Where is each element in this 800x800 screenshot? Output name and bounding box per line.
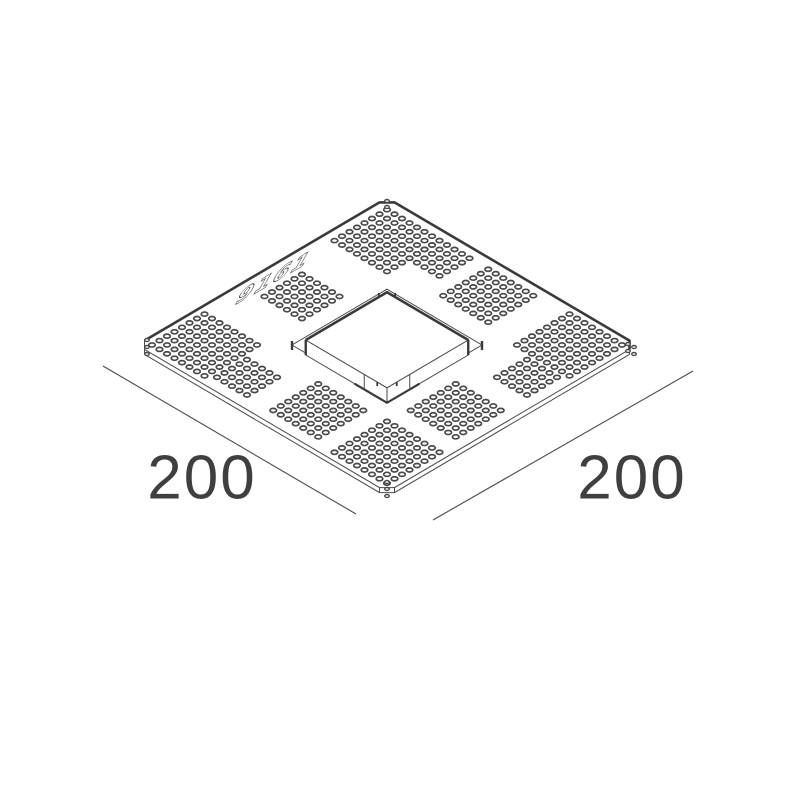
perforation-hole <box>194 316 201 320</box>
perforation-hole <box>346 441 353 445</box>
perforation-hole <box>414 446 421 450</box>
perforation-hole <box>500 276 507 280</box>
perforation-hole <box>421 230 428 234</box>
perforation-hole <box>470 276 477 280</box>
perforation-hole <box>524 393 531 397</box>
perforation-hole <box>209 343 216 347</box>
perforation-hole <box>415 404 422 408</box>
perforation-hole <box>354 463 361 467</box>
perforation-hole <box>421 256 428 260</box>
perforation-hole <box>221 380 228 384</box>
perforation-hole <box>376 433 383 437</box>
perforation-hole <box>321 294 328 298</box>
perforation-hole <box>306 303 313 307</box>
perforation-hole <box>477 298 484 302</box>
perforation-hole <box>331 450 338 454</box>
perforation-hole <box>322 413 329 417</box>
perforation-hole <box>551 356 558 360</box>
perforation-hole <box>536 330 543 334</box>
perforation-hole <box>415 413 422 417</box>
perforation-hole <box>179 361 186 365</box>
perforation-hole <box>354 243 361 247</box>
perforation-hole <box>337 395 344 399</box>
perforation-hole <box>422 400 429 404</box>
perforation-hole <box>399 225 406 229</box>
perforation-hole <box>421 441 428 445</box>
perforation-hole <box>581 321 588 325</box>
perforation-hole <box>291 277 298 281</box>
perforation-hole <box>485 285 492 289</box>
perforation-hole <box>445 386 452 390</box>
perforation-hole <box>477 289 484 293</box>
perforation-hole <box>524 366 531 370</box>
perforation-hole <box>209 334 216 338</box>
perforation-hole <box>369 252 376 256</box>
perforation-hole <box>429 455 436 459</box>
perforation-hole <box>509 366 516 370</box>
perforation-hole <box>391 477 398 481</box>
perforation-hole <box>399 428 406 432</box>
perforation-hole <box>369 261 376 265</box>
perforation-hole <box>437 426 444 430</box>
perforation-hole <box>492 307 499 311</box>
perforation-hole <box>244 366 251 370</box>
plate-isometric-drawing: 9161 <box>0 0 800 800</box>
perforation-hole <box>559 352 566 356</box>
perforation-hole <box>470 294 477 298</box>
perforation-hole <box>352 413 359 417</box>
perforation-hole <box>574 343 581 347</box>
perforation-hole <box>194 352 201 356</box>
perforation-hole <box>376 265 383 269</box>
corner-fixing-hole <box>626 350 631 353</box>
perforation-hole <box>376 230 383 234</box>
perforation-hole <box>436 239 443 243</box>
perforation-hole <box>384 419 391 423</box>
perforation-hole <box>244 375 251 379</box>
perforation-hole <box>244 384 251 388</box>
perforation-hole <box>307 395 314 399</box>
perforation-hole <box>369 446 376 450</box>
perforation-hole <box>231 356 238 360</box>
perforation-hole <box>524 384 531 388</box>
perforation-hole <box>447 289 454 293</box>
perforation-hole <box>307 430 314 434</box>
perforation-hole <box>352 404 359 408</box>
perforation-hole <box>445 413 452 417</box>
perforation-hole <box>330 426 337 430</box>
perforation-hole <box>284 290 291 294</box>
perforation-hole <box>536 347 543 351</box>
perforation-hole <box>406 239 413 243</box>
perforation-hole <box>239 343 246 347</box>
perforation-hole <box>470 311 477 315</box>
perforation-hole <box>589 361 596 365</box>
perforation-hole <box>596 339 603 343</box>
perforation-hole <box>492 289 499 293</box>
perforation-hole <box>554 375 561 379</box>
perforation-hole <box>574 361 581 365</box>
perforation-hole <box>462 280 469 284</box>
perforation-hole <box>546 380 553 384</box>
perforation-hole <box>315 408 322 412</box>
perforation-hole <box>414 463 421 467</box>
perforation-hole <box>201 374 208 378</box>
perforation-hole <box>276 303 283 307</box>
perforation-hole <box>500 285 507 289</box>
perforation-hole <box>285 408 292 412</box>
perforation-hole <box>482 408 489 412</box>
perforation-hole <box>452 408 459 412</box>
perforation-hole <box>460 395 467 399</box>
perforation-hole <box>452 435 459 439</box>
perforation-hole <box>429 269 436 273</box>
perforation-hole <box>514 343 521 347</box>
perforation-hole <box>436 265 443 269</box>
perforation-hole <box>551 365 558 369</box>
perforation-hole <box>485 311 492 315</box>
perforation-hole <box>384 243 391 247</box>
perforation-hole <box>277 404 284 408</box>
perforation-hole <box>266 371 273 375</box>
perforation-hole <box>422 408 429 412</box>
perforation-hole <box>436 450 443 454</box>
perforation-hole <box>331 239 338 243</box>
perforation-hole <box>460 422 467 426</box>
perforation-hole <box>239 334 246 338</box>
perforation-hole <box>259 384 266 388</box>
perforation-hole <box>494 375 501 379</box>
perforation-hole <box>254 343 261 347</box>
perforation-hole <box>477 307 484 311</box>
perforation-hole <box>477 280 484 284</box>
perforation-hole <box>581 339 588 343</box>
perforation-hole <box>229 384 236 388</box>
perforation-hole <box>376 459 383 463</box>
perforation-hole <box>455 294 462 298</box>
perforation-hole <box>306 286 313 290</box>
perforation-hole <box>384 217 391 221</box>
perforation-hole <box>467 426 474 430</box>
perforation-hole <box>536 339 543 343</box>
perforation-hole <box>361 230 368 234</box>
perforation-hole <box>224 325 231 329</box>
perforation-hole <box>406 230 413 234</box>
perforation-hole <box>574 352 581 356</box>
perforation-hole <box>429 261 436 265</box>
perforation-hole <box>171 339 178 343</box>
perforation-hole <box>322 430 329 434</box>
perforation-hole <box>421 239 428 243</box>
perforation-hole <box>566 365 573 369</box>
perforation-hole <box>201 365 208 369</box>
perforation-hole <box>492 316 499 320</box>
perforation-hole <box>384 252 391 256</box>
perforation-hole <box>346 239 353 243</box>
perforation-hole <box>406 441 413 445</box>
perforation-hole <box>515 285 522 289</box>
perforation-hole <box>407 408 414 412</box>
perforation-hole <box>581 330 588 334</box>
perforation-hole <box>529 343 536 347</box>
perforation-hole <box>391 441 398 445</box>
perforation-hole <box>201 339 208 343</box>
perforation-hole <box>406 247 413 251</box>
perforation-hole <box>276 286 283 290</box>
perforation-hole <box>485 267 492 271</box>
perforation-hole <box>251 362 258 366</box>
perforation-hole <box>354 446 361 450</box>
perforation-hole <box>369 243 376 247</box>
perforation-hole <box>236 362 243 366</box>
perforation-hole <box>251 389 258 393</box>
perforation-hole <box>209 361 216 365</box>
perforation-hole <box>414 455 421 459</box>
perforation-hole <box>482 417 489 421</box>
perforation-hole <box>376 247 383 251</box>
perforation-hole <box>361 450 368 454</box>
perforation-hole <box>559 334 566 338</box>
perforation-hole <box>462 289 469 293</box>
perforation-hole <box>314 308 321 312</box>
perforation-hole <box>444 243 451 247</box>
perforation-hole <box>460 404 467 408</box>
perforation-hole <box>529 334 536 338</box>
perforation-hole <box>307 413 314 417</box>
perforation-hole <box>251 371 258 375</box>
perforation-hole <box>452 382 459 386</box>
perforation-hole <box>470 285 477 289</box>
perforation-hole <box>399 463 406 467</box>
perforation-hole <box>566 347 573 351</box>
perforation-hole <box>574 325 581 329</box>
perforation-hole <box>531 380 538 384</box>
perforation-hole <box>530 294 537 298</box>
perforation-hole <box>452 400 459 404</box>
perforation-hole <box>384 225 391 229</box>
perforation-hole <box>369 428 376 432</box>
perforation-hole <box>485 303 492 307</box>
perforation-hole <box>314 281 321 285</box>
perforation-hole <box>399 217 406 221</box>
perforation-hole <box>306 277 313 281</box>
perforation-hole <box>246 339 253 343</box>
perforation-hole <box>284 299 291 303</box>
perforation-hole <box>361 256 368 260</box>
perforation-hole <box>339 243 346 247</box>
perforation-hole <box>460 386 467 390</box>
perforation-hole <box>470 303 477 307</box>
perforation-hole <box>559 361 566 365</box>
perforation-hole <box>539 375 546 379</box>
perforation-hole <box>299 281 306 285</box>
perforation-hole <box>261 294 268 298</box>
perforation-hole <box>522 298 529 302</box>
perforation-hole <box>360 408 367 412</box>
perforation-hole <box>451 256 458 260</box>
perforation-hole <box>399 446 406 450</box>
perforation-hole <box>500 303 507 307</box>
perforation-hole <box>259 375 266 379</box>
perforation-hole <box>201 321 208 325</box>
perforation-hole <box>384 428 391 432</box>
perforation-hole <box>500 294 507 298</box>
perforation-hole <box>369 234 376 238</box>
perforation-hole <box>406 221 413 225</box>
perforation-hole <box>492 280 499 284</box>
perforation-hole <box>239 352 246 356</box>
perforation-hole <box>566 356 573 360</box>
perforation-hole <box>376 221 383 225</box>
perforation-hole <box>391 256 398 260</box>
perforation-hole <box>391 212 398 216</box>
perforation-hole <box>574 369 581 373</box>
perforation-hole <box>451 265 458 269</box>
perforation-hole <box>186 356 193 360</box>
perforation-hole <box>229 375 236 379</box>
perforation-hole <box>460 413 467 417</box>
corner-fixing-hole <box>626 343 631 346</box>
perforation-hole <box>485 320 492 324</box>
perforation-hole <box>346 450 353 454</box>
perforation-hole <box>209 316 216 320</box>
perforation-hole <box>391 424 398 428</box>
perforation-hole <box>284 281 291 285</box>
perforation-hole <box>507 280 514 284</box>
perforation-hole <box>300 408 307 412</box>
perforation-hole <box>376 468 383 472</box>
perforation-hole <box>566 374 573 378</box>
perforation-hole <box>322 404 329 408</box>
perforation-hole <box>475 413 482 417</box>
perforation-hole <box>214 375 221 379</box>
perforation-hole <box>581 347 588 351</box>
perforation-hole <box>574 316 581 320</box>
perforation-hole <box>179 334 186 338</box>
perforation-hole <box>216 321 223 325</box>
perforation-hole <box>500 311 507 315</box>
perforation-hole <box>559 343 566 347</box>
perforation-hole <box>391 450 398 454</box>
perforation-hole <box>524 358 531 362</box>
perforation-hole <box>339 446 346 450</box>
perforation-hole <box>251 380 258 384</box>
perforation-hole <box>467 417 474 421</box>
perforation-hole <box>546 371 553 375</box>
perforation-hole <box>270 408 277 412</box>
perforation-hole <box>445 422 452 426</box>
perforation-hole <box>490 413 497 417</box>
perforation-hole <box>186 321 193 325</box>
perforation-hole <box>186 330 193 334</box>
perforation-hole <box>544 334 551 338</box>
perforation-hole <box>384 446 391 450</box>
perforation-hole <box>574 334 581 338</box>
perforation-hole <box>466 256 473 260</box>
perforation-hole <box>322 422 329 426</box>
perforation-hole <box>345 417 352 421</box>
perforation-hole <box>399 472 406 476</box>
corner-fixing-hole <box>632 346 637 349</box>
perforation-hole <box>337 404 344 408</box>
perforation-hole <box>452 417 459 421</box>
perforation-hole <box>414 243 421 247</box>
perforation-hole <box>589 325 596 329</box>
perforation-hole <box>229 366 236 370</box>
perforation-hole <box>354 437 361 441</box>
perforation-hole <box>376 450 383 454</box>
perforation-hole <box>315 391 322 395</box>
perforation-hole <box>209 352 216 356</box>
perforation-hole <box>369 463 376 467</box>
perforation-hole <box>529 352 536 356</box>
perforation-hole <box>194 361 201 365</box>
perforation-hole <box>307 386 314 390</box>
perforation-hole <box>201 347 208 351</box>
perforation-hole <box>477 316 484 320</box>
perforation-hole <box>467 400 474 404</box>
perforation-hole <box>291 294 298 298</box>
perforation-hole <box>269 290 276 294</box>
perforation-hole <box>421 450 428 454</box>
perforation-hole <box>209 369 216 373</box>
perforation-hole <box>414 437 421 441</box>
perforation-hole <box>447 298 454 302</box>
perforation-hole <box>292 395 299 399</box>
perforation-hole <box>455 303 462 307</box>
perforation-hole <box>391 239 398 243</box>
perforation-hole <box>259 366 266 370</box>
perforation-hole <box>315 426 322 430</box>
perforation-hole <box>539 366 546 370</box>
perforation-hole <box>566 321 573 325</box>
perforation-hole <box>551 339 558 343</box>
perforation-hole <box>524 375 531 379</box>
perforation-hole <box>299 272 306 276</box>
perforation-hole <box>559 325 566 329</box>
perforation-hole <box>186 365 193 369</box>
perforation-hole <box>345 408 352 412</box>
perforation-hole <box>354 455 361 459</box>
perforation-hole <box>291 303 298 307</box>
perforation-hole <box>156 347 163 351</box>
corner-fixing-hole <box>385 495 390 498</box>
perforation-hole <box>376 424 383 428</box>
perforation-hole <box>314 290 321 294</box>
perforation-hole <box>391 468 398 472</box>
perforation-hole <box>384 472 391 476</box>
perforation-hole <box>507 307 514 311</box>
corner-fixing-hole <box>145 353 150 356</box>
perforation-hole <box>536 356 543 360</box>
perforation-hole <box>209 325 216 329</box>
perforation-hole <box>236 380 243 384</box>
perforation-hole <box>531 371 538 375</box>
perforation-hole <box>551 330 558 334</box>
perforation-hole <box>236 389 243 393</box>
perforation-hole <box>611 347 618 351</box>
perforation-hole <box>492 298 499 302</box>
perforation-hole <box>216 356 223 360</box>
perforation-hole <box>171 330 178 334</box>
perforation-hole <box>299 316 306 320</box>
perforation-hole <box>451 247 458 251</box>
perforation-hole <box>300 426 307 430</box>
perforation-hole <box>497 408 504 412</box>
corner-fixing-hole <box>145 346 150 349</box>
perforation-hole <box>516 380 523 384</box>
perforation-hole <box>164 352 171 356</box>
